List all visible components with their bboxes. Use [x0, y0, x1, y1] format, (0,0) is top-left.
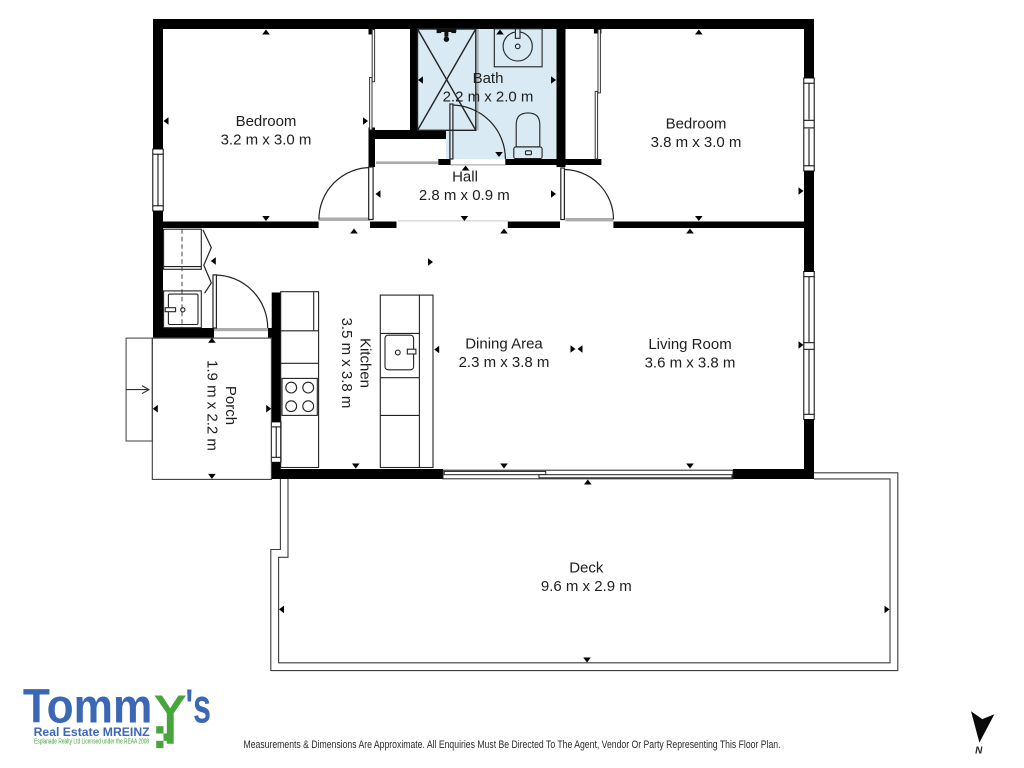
svg-text:Deck: Deck [569, 560, 604, 577]
svg-text:Esplanade Realty Ltd Licensed: Esplanade Realty Ltd Licensed under the … [34, 739, 149, 746]
svg-text:3.6 m x 3.8 m: 3.6 m x 3.8 m [645, 355, 736, 372]
svg-text:Bedroom: Bedroom [666, 116, 727, 133]
svg-text:Porch: Porch [222, 386, 239, 425]
svg-text:1.9 m x 2.2 m: 1.9 m x 2.2 m [203, 360, 220, 451]
svg-text:Dining Area: Dining Area [465, 336, 543, 353]
svg-text:3.8 m x 3.0 m: 3.8 m x 3.0 m [651, 134, 742, 151]
svg-text:Kitchen: Kitchen [356, 338, 373, 388]
svg-text:Hall: Hall [452, 168, 478, 185]
svg-text:'s: 's [186, 680, 212, 733]
svg-text:2.8 m x 0.9 m: 2.8 m x 0.9 m [419, 187, 510, 204]
svg-text:2.3 m x 3.8 m: 2.3 m x 3.8 m [459, 354, 550, 371]
svg-text:2.2 m x 2.0 m: 2.2 m x 2.0 m [443, 89, 534, 106]
svg-text:Measurements & Dimensions Are: Measurements & Dimensions Are Approximat… [244, 739, 781, 751]
svg-text:3.5 m x 3.8 m: 3.5 m x 3.8 m [338, 318, 355, 409]
svg-text:3.2 m x 3.0 m: 3.2 m x 3.0 m [221, 132, 312, 149]
svg-text:Living Room: Living Room [648, 336, 731, 353]
svg-text:N: N [975, 746, 983, 757]
svg-text:Bath: Bath [473, 70, 504, 87]
svg-text:Real Estate MREINZ: Real Estate MREINZ [34, 725, 150, 739]
svg-text:Bedroom: Bedroom [236, 113, 297, 130]
svg-text:9.6 m x 2.9 m: 9.6 m x 2.9 m [541, 578, 632, 595]
